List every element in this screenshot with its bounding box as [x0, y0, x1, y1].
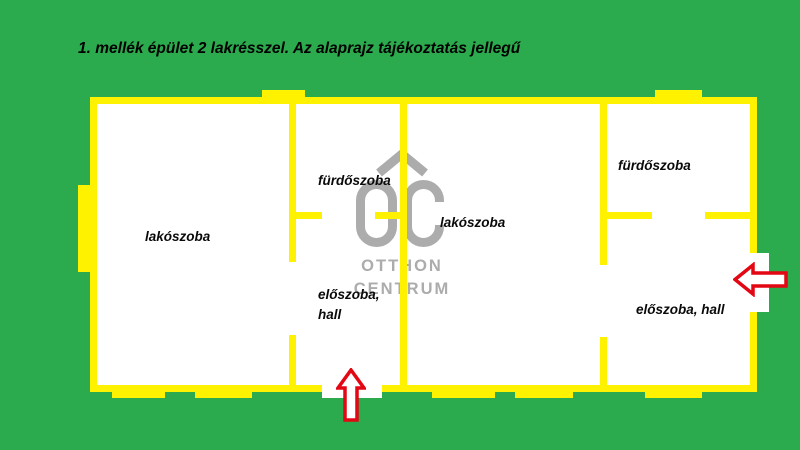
arrow-up-icon [336, 368, 366, 422]
room-label-mid-living: lakószoba [440, 213, 505, 233]
wall-bottom-right [382, 385, 757, 392]
wall-v1-lower [289, 335, 296, 392]
room-label-left-living: lakószoba [145, 227, 210, 247]
window-bottom-3 [432, 392, 495, 398]
wall-h2-right [705, 212, 757, 219]
wall-h1-left [289, 212, 322, 219]
wall-top [90, 97, 757, 104]
wall-v3-upper [600, 97, 607, 265]
floorplan-canvas: 1. mellék épület 2 lakrésszel. Az alapra… [0, 0, 800, 450]
window-bottom-2 [195, 392, 252, 398]
page-title: 1. mellék épület 2 lakrésszel. Az alapra… [78, 40, 520, 58]
window-top-2 [655, 90, 702, 97]
room-label-right-bath: fürdőszoba [618, 156, 691, 176]
wall-h1-right [375, 212, 407, 219]
wall-right-lower [750, 312, 757, 392]
window-top-1 [262, 90, 305, 97]
wall-right-upper [750, 97, 757, 253]
window-bottom-5 [645, 392, 702, 398]
window-bottom-1 [112, 392, 165, 398]
wall-v3-lower [600, 337, 607, 392]
wall-v1-upper [289, 97, 296, 262]
room-label-mid-hall: előszoba, hall [318, 285, 380, 325]
room-label-right-hall: előszoba, hall [636, 300, 725, 320]
window-bottom-4 [515, 392, 573, 398]
wall-h2-left [600, 212, 652, 219]
wall-left [90, 97, 97, 392]
arrow-left-icon [733, 262, 788, 297]
floorplan: OTTHON CENTRUM lakószoba fürdőszoba lakó… [90, 97, 757, 392]
wall-bottom-left [90, 385, 322, 392]
window-left-1 [78, 185, 90, 272]
wall-v2 [400, 97, 407, 392]
room-label-mid-bath: fürdőszoba [318, 171, 391, 191]
